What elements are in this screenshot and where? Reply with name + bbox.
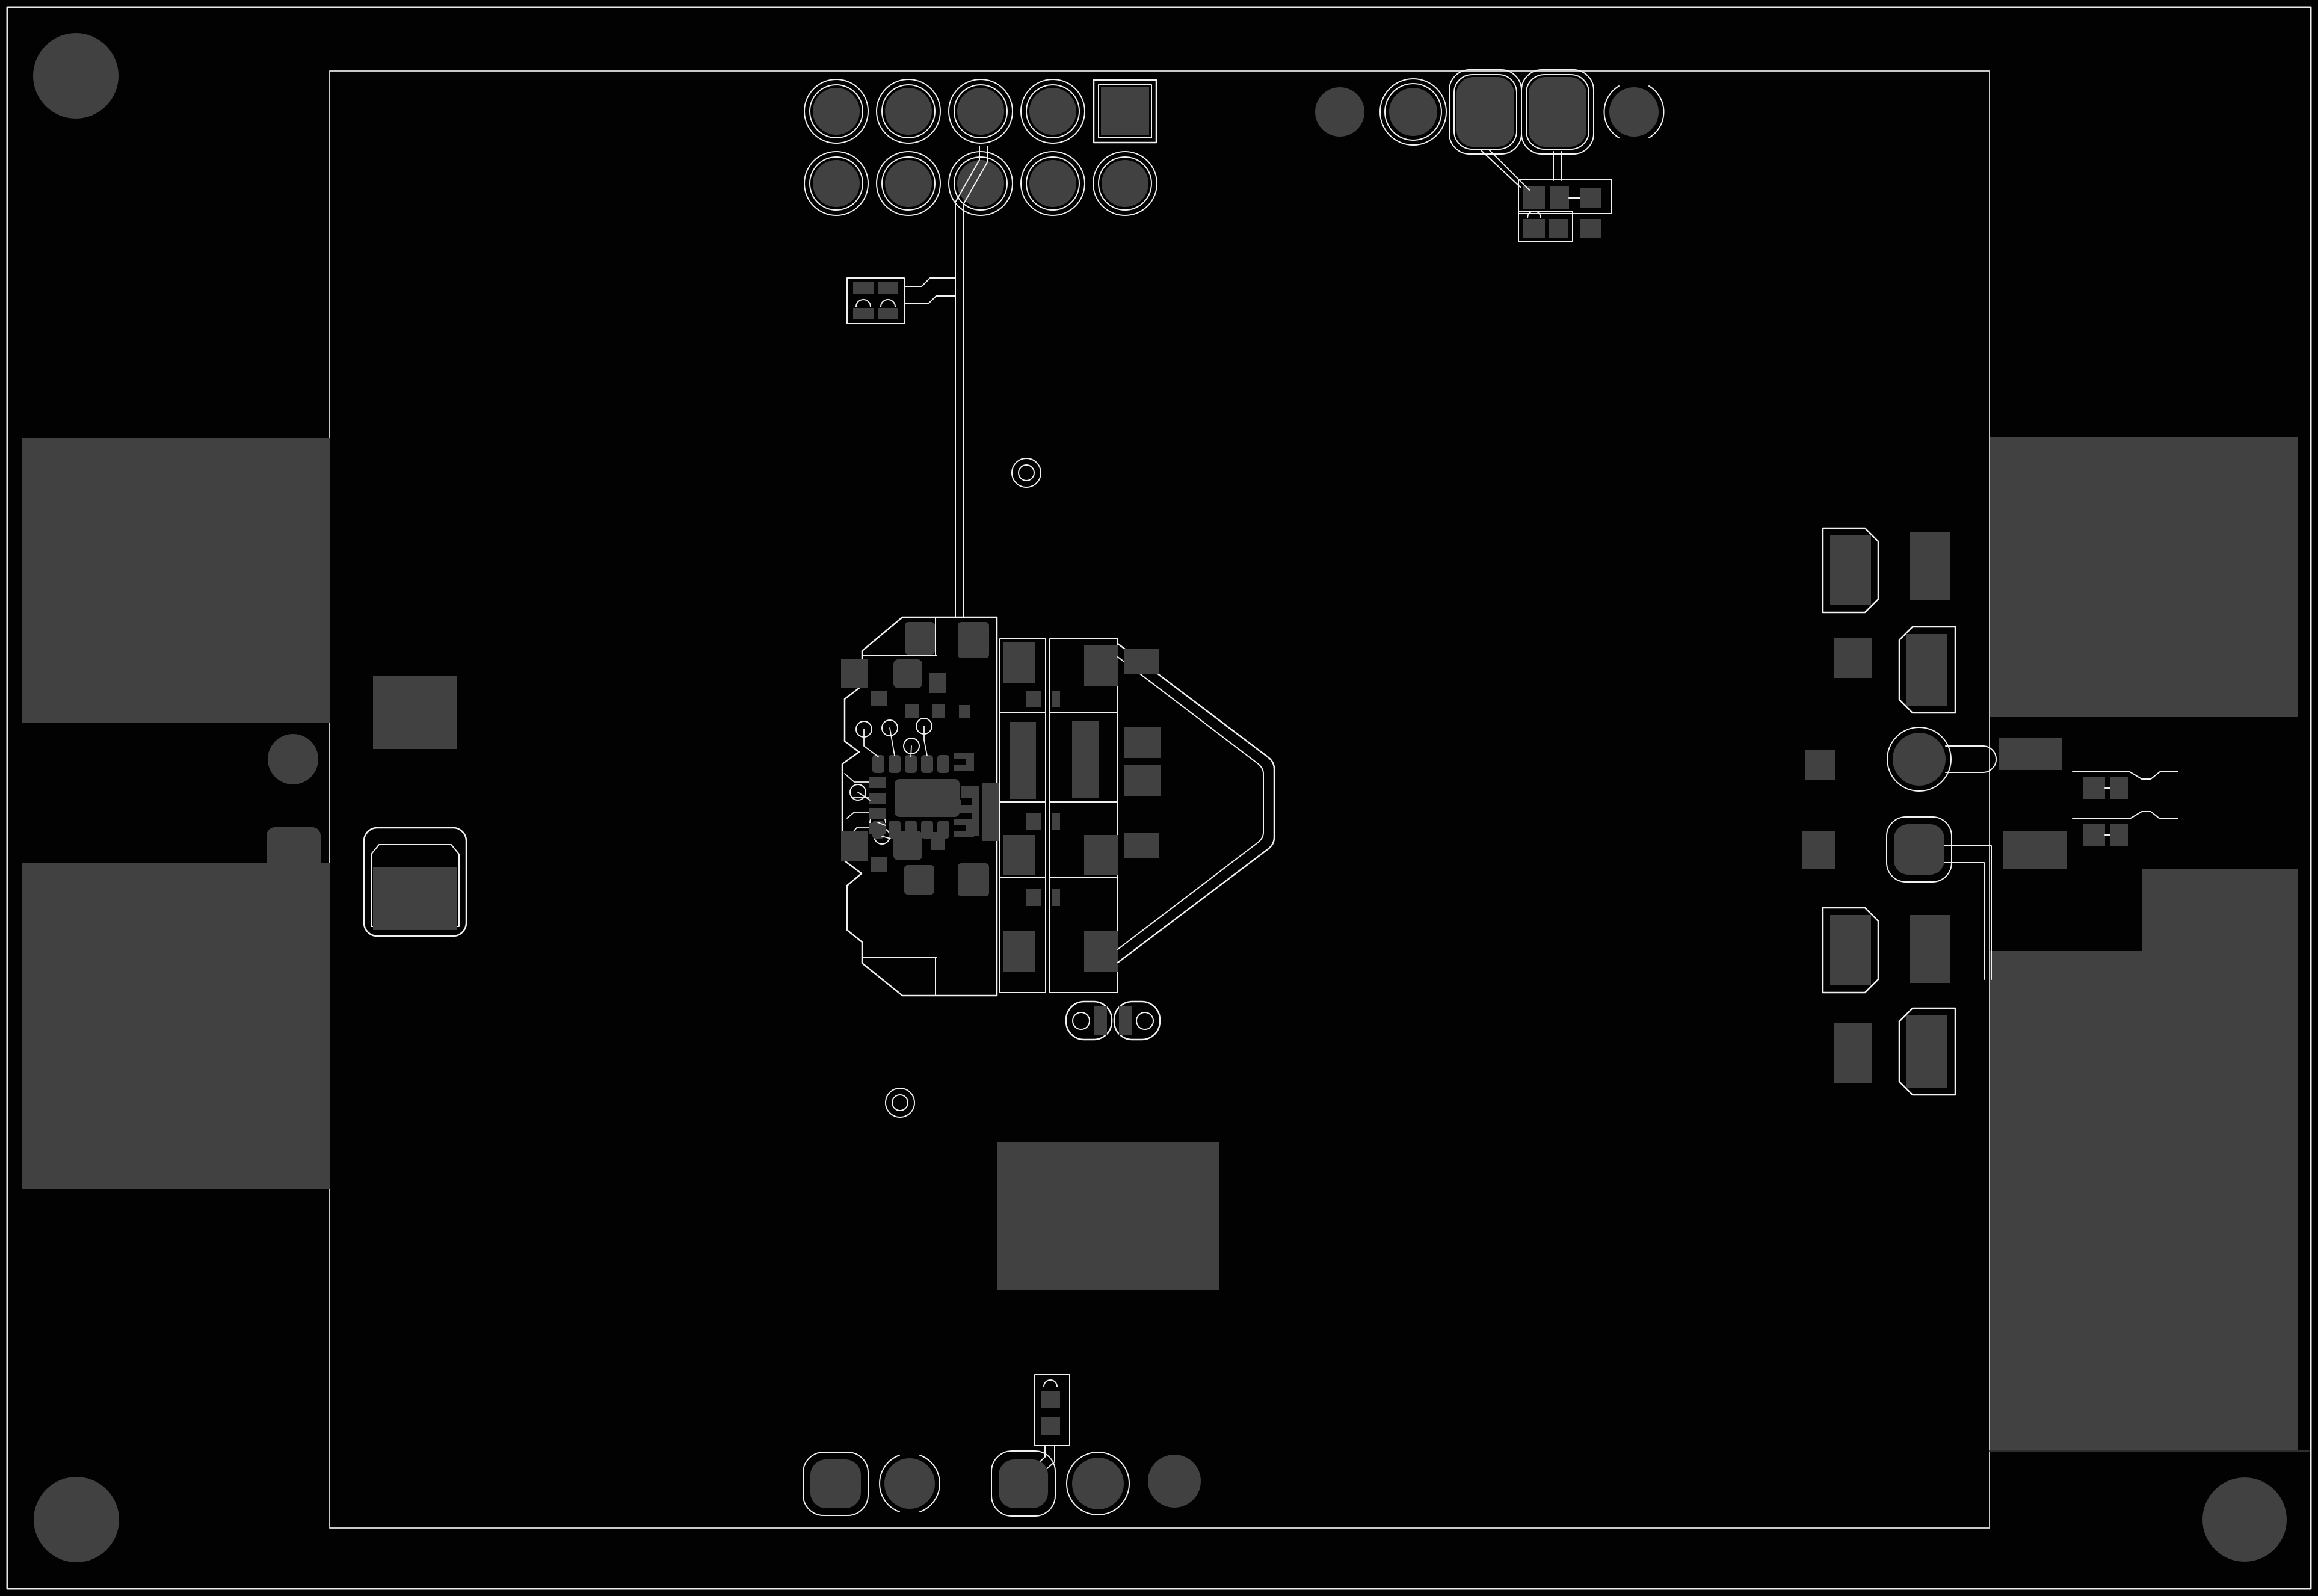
bottom-pad3 [999,1459,1048,1508]
ic-pin-left-1 [869,777,886,788]
ic-wing-tl-far-pad [841,659,868,688]
component-c1-pad2 [878,282,898,294]
component-c2-pad6 [1580,219,1601,238]
component-c1-pad3 [853,308,874,319]
right-col-bar [1072,721,1099,798]
mid-col-sq-1 [1026,691,1041,707]
header-b-pad5 [1102,160,1148,207]
ic-small-sq-2 [905,704,919,718]
header-a-pad3 [957,88,1004,135]
right-part3-pad [1834,638,1872,678]
ic-pin-top-4 [921,755,933,773]
ic-pin-bottom-f-notch [954,825,966,831]
component-c1-pad4 [878,308,898,319]
conn-sq-3 [2083,824,2105,846]
ic-center-pad [895,779,960,817]
ic-pin-top-5 [937,755,949,773]
component-c2-pad4 [1523,219,1545,238]
header-a-pad4 [1029,88,1076,135]
pcb-layout-screenshot [0,0,2318,1596]
header-a-square-pad [1101,87,1149,135]
arrow-rect-top [1124,649,1159,674]
component-cd-pad-left [1094,1006,1107,1035]
ic-wing-bl-far-pad [841,831,868,861]
ic-pin-top-f-notch [954,759,966,765]
header-c-pad2 [1389,88,1437,136]
bottom-pad2 [884,1458,935,1509]
header-b-pad2 [885,160,932,207]
mid-col-pad-1 [1003,642,1035,683]
pad-left-mid-rect [373,676,457,749]
pour-left-bottom [22,863,330,1189]
trace-ic-4 [911,746,911,757]
fiducial-top-left [33,33,119,119]
fiducial-bottom-right [2202,1477,2287,1562]
ic-e-pad-notch1 [961,798,972,805]
ic-top-pad-right [958,622,989,658]
pad-left-mid-square [267,827,321,881]
header-c-pad4 [1529,77,1586,147]
right-circle-pad [1893,733,1946,786]
conn-sq-2 [2110,777,2128,799]
right-part7-pad [1830,915,1871,985]
right-col-pad-2 [1084,835,1118,875]
right-col-sq-1 [1052,691,1060,707]
component-c2-pad1 [1523,186,1545,209]
header-b-pad1 [813,160,860,207]
module-left-pad [373,867,457,930]
conn-rect-pad [2003,831,2067,869]
component-c2-pad2 [1550,186,1569,209]
component-c3-pad1 [1041,1391,1060,1408]
pour-bottom-center [997,1142,1219,1290]
conn-sq-1 [2083,777,2105,799]
right-part2-pad [1910,532,1950,600]
mid-col-pad-2 [1003,835,1035,875]
ic-small-sq-1 [871,691,887,706]
header-c-pad5 [1609,87,1659,137]
component-c2-pad5 [1549,219,1568,238]
component-c2-pad3 [1580,188,1601,208]
right-part1-pad [1830,535,1871,605]
header-a-pad1 [813,88,860,135]
ic-wing-bl-rect [931,832,945,850]
bottom-pad1 [810,1459,861,1508]
bottom-pad4 [1072,1458,1124,1509]
ic-top-pad-left [905,622,935,655]
right-col-pad-1 [1084,645,1118,686]
header-a-pad2 [885,88,932,135]
bottom-pad5 [1148,1455,1201,1508]
ic-pin-top-3 [905,755,917,773]
ic-pin-top-2 [889,755,901,773]
mid-col-sq-2 [1026,813,1041,830]
ic-small-sq-4 [959,705,970,718]
mid-col-bar [1010,722,1036,799]
component-cd-pad-right [1119,1006,1132,1035]
ic-small-sq-3 [932,704,945,718]
pour-left-top [22,438,330,723]
ic-small-sq-8 [871,857,887,872]
ic-right-bar [982,783,1000,841]
ic-bottom-pad-right [958,863,989,896]
fiducial-bottom-left [34,1477,119,1562]
pour-right-top [1990,437,2298,717]
right-col-sq-3 [1052,889,1060,906]
ic-pin-left-3 [869,808,886,819]
ic-pin-left-2 [869,793,886,804]
header-b-pad3 [957,160,1004,207]
mid-col-sq-3 [1026,889,1041,906]
ic-pin-top-1 [872,755,884,773]
right-trace-target-pad [1999,738,2062,770]
arrow-rect-mid1 [1124,727,1161,758]
board-background [0,0,2318,1596]
header-c-pad1 [1315,87,1364,137]
header-b-pad4 [1029,160,1076,207]
right-part9-pad [1834,1023,1872,1083]
pour-right-bottom [1990,869,2298,1450]
ic-wing-tl-rect [929,673,946,693]
right-col-pad-3 [1084,931,1118,972]
ic-bottom-pad-left [904,865,934,895]
arrow-rect-bottom [1124,833,1159,858]
right-part8-pad [1910,915,1950,983]
right-col-sq-2 [1052,813,1060,830]
right-part5-pad [1805,750,1835,780]
arrow-rect-mid2 [1124,765,1161,796]
right-part10-pad [1906,1015,1947,1088]
conn-sq-4 [2110,824,2128,846]
ic-wing-bl-pad [893,831,922,860]
component-c1-pad1 [853,282,874,294]
mid-col-pad-3 [1003,931,1035,972]
pad-left-mid-circle [268,734,318,784]
right-part4-pad [1906,634,1947,706]
component-c3-pad2 [1041,1417,1060,1435]
ic-wing-tl-pad [893,659,922,688]
right-part6-pad [1802,831,1835,869]
pcb-board-render [0,0,2318,1596]
header-c-pad3 [1456,77,1514,147]
right-square-pad [1894,824,1944,875]
